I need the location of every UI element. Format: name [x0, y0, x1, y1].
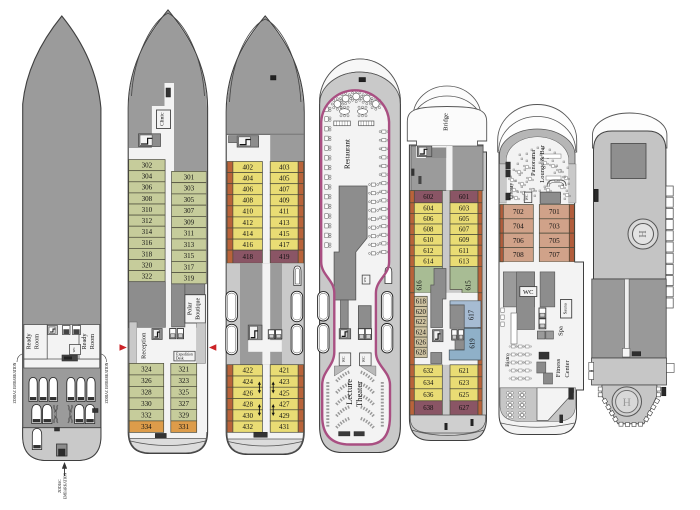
svg-text:425: 425 — [279, 389, 290, 397]
svg-text:408: 408 — [242, 197, 253, 205]
svg-text:632: 632 — [423, 368, 434, 375]
svg-text:320: 320 — [142, 261, 153, 269]
svg-text:Library: Library — [508, 183, 514, 200]
svg-text:611: 611 — [459, 248, 469, 255]
svg-text:328: 328 — [141, 389, 152, 397]
svg-text:331: 331 — [179, 423, 190, 431]
svg-text:307: 307 — [184, 207, 195, 215]
svg-text:412: 412 — [242, 219, 253, 227]
svg-text:315: 315 — [184, 252, 195, 260]
svg-text:Desk: Desk — [176, 356, 184, 360]
svg-text:308: 308 — [142, 195, 153, 203]
svg-text:605: 605 — [459, 216, 470, 223]
svg-text:322: 322 — [142, 273, 153, 281]
svg-text:407: 407 — [279, 186, 290, 194]
svg-text:432: 432 — [242, 423, 253, 431]
svg-text:H: H — [638, 230, 649, 237]
svg-text:330: 330 — [141, 400, 152, 408]
svg-text:626: 626 — [416, 340, 427, 347]
svg-text:624: 624 — [416, 329, 427, 336]
svg-text:304: 304 — [142, 173, 153, 181]
svg-text:WC: WC — [363, 276, 367, 282]
svg-text:427: 427 — [279, 401, 290, 409]
svg-text:Sauna: Sauna — [562, 303, 567, 314]
svg-text:Lounge & Bar: Lounge & Bar — [539, 144, 546, 182]
svg-text:Lecture: Lecture — [344, 379, 354, 405]
svg-text:615: 615 — [466, 280, 473, 291]
svg-text:620: 620 — [416, 309, 427, 316]
svg-text:609: 609 — [459, 237, 470, 244]
svg-text:ZODIAC EMBARKATION: ZODIAC EMBARKATION — [105, 362, 109, 403]
svg-text:622: 622 — [416, 319, 427, 326]
svg-text:421: 421 — [279, 367, 290, 375]
svg-text:402: 402 — [242, 163, 253, 171]
svg-text:426: 426 — [242, 389, 253, 397]
svg-text:415: 415 — [279, 230, 290, 238]
svg-text:Ready: Ready — [26, 333, 33, 350]
svg-text:301: 301 — [184, 173, 195, 181]
svg-text:317: 317 — [184, 263, 195, 271]
svg-text:416: 416 — [242, 241, 253, 249]
svg-text:306: 306 — [142, 184, 153, 192]
svg-text:428: 428 — [242, 401, 253, 409]
svg-text:623: 623 — [459, 380, 470, 387]
svg-text:Fitness: Fitness — [555, 358, 562, 377]
svg-text:Boutique: Boutique — [195, 297, 201, 319]
svg-text:319: 319 — [184, 275, 195, 283]
svg-text:604: 604 — [423, 205, 434, 212]
svg-text:601: 601 — [459, 194, 469, 201]
svg-text:617: 617 — [468, 309, 475, 320]
svg-text:607: 607 — [459, 227, 470, 234]
svg-text:410: 410 — [242, 208, 253, 216]
svg-text:411: 411 — [279, 208, 290, 216]
svg-text:613: 613 — [459, 258, 470, 265]
svg-text:702: 702 — [513, 208, 524, 216]
svg-text:311: 311 — [184, 230, 195, 238]
svg-text:Reception: Reception — [140, 332, 147, 359]
svg-text:303: 303 — [184, 185, 195, 193]
svg-text:334: 334 — [141, 423, 152, 431]
svg-text:321: 321 — [179, 366, 190, 374]
svg-text:429: 429 — [279, 412, 290, 420]
svg-text:628: 628 — [416, 350, 427, 357]
svg-text:704: 704 — [513, 223, 524, 231]
svg-text:614: 614 — [423, 258, 434, 265]
svg-text:Restaurant: Restaurant — [343, 139, 351, 169]
svg-text:602: 602 — [423, 194, 434, 201]
svg-text:627: 627 — [459, 405, 470, 412]
svg-text:705: 705 — [549, 237, 560, 245]
svg-text:Ready: Ready — [81, 333, 88, 350]
svg-text:Panorama: Panorama — [530, 150, 537, 176]
svg-text:606: 606 — [423, 216, 434, 223]
svg-text:603: 603 — [459, 205, 470, 212]
svg-text:625: 625 — [459, 392, 470, 399]
svg-text:431: 431 — [279, 423, 290, 431]
svg-text:ZODIAC: ZODIAC — [58, 479, 62, 493]
svg-text:707: 707 — [549, 251, 560, 259]
svg-text:419: 419 — [279, 253, 290, 261]
svg-text:325: 325 — [179, 389, 190, 397]
svg-text:638: 638 — [423, 405, 434, 412]
svg-text:634: 634 — [423, 380, 434, 387]
svg-text:708: 708 — [513, 251, 524, 259]
svg-text:302: 302 — [142, 162, 153, 170]
svg-text:430: 430 — [242, 412, 253, 420]
svg-text:305: 305 — [184, 196, 195, 204]
svg-text:424: 424 — [242, 378, 253, 386]
svg-text:423: 423 — [279, 378, 290, 386]
svg-text:327: 327 — [179, 400, 190, 408]
svg-text:418: 418 — [242, 253, 253, 261]
svg-text:610: 610 — [423, 237, 434, 244]
svg-text:Theater: Theater — [354, 381, 364, 407]
svg-text:706: 706 — [513, 237, 524, 245]
svg-text:403: 403 — [279, 163, 290, 171]
svg-text:619: 619 — [470, 338, 477, 349]
svg-text:616: 616 — [417, 280, 424, 291]
svg-text:Polar: Polar — [187, 302, 193, 315]
svg-text:409: 409 — [279, 197, 290, 205]
svg-text:318: 318 — [142, 250, 153, 258]
svg-text:314: 314 — [142, 228, 153, 236]
svg-text:703: 703 — [549, 223, 560, 231]
svg-text:H: H — [623, 397, 631, 409]
svg-text:Clinic: Clinic — [159, 112, 165, 126]
svg-text:WC: WC — [362, 356, 366, 362]
svg-text:422: 422 — [242, 367, 253, 375]
svg-text:332: 332 — [141, 412, 152, 420]
svg-text:WC: WC — [525, 194, 529, 200]
svg-text:323: 323 — [179, 377, 190, 385]
svg-text:ZODIAC EMBARKATION: ZODIAC EMBARKATION — [13, 362, 17, 403]
svg-text:618: 618 — [416, 299, 427, 306]
svg-text:414: 414 — [242, 230, 253, 238]
svg-text:WC: WC — [342, 356, 346, 362]
svg-text:EMBARKATION: EMBARKATION — [64, 473, 68, 500]
svg-text:326: 326 — [141, 377, 152, 385]
svg-text:417: 417 — [279, 241, 290, 249]
svg-text:309: 309 — [184, 218, 195, 226]
svg-text:329: 329 — [179, 412, 190, 420]
svg-text:Spa: Spa — [558, 326, 565, 336]
svg-text:612: 612 — [423, 248, 434, 255]
svg-text:701: 701 — [549, 208, 560, 216]
svg-text:WC: WC — [72, 347, 76, 352]
svg-text:316: 316 — [142, 239, 153, 247]
svg-text:404: 404 — [242, 175, 253, 183]
svg-text:Room: Room — [89, 334, 96, 349]
svg-text:406: 406 — [242, 186, 253, 194]
svg-text:Bistro: Bistro — [505, 353, 511, 367]
svg-text:324: 324 — [141, 366, 152, 374]
svg-text:Center: Center — [564, 360, 571, 378]
svg-text:621: 621 — [459, 368, 469, 375]
svg-text:413: 413 — [279, 219, 290, 227]
svg-text:313: 313 — [184, 241, 195, 249]
svg-text:636: 636 — [423, 392, 434, 399]
svg-text:310: 310 — [142, 206, 153, 214]
svg-text:312: 312 — [142, 217, 153, 225]
svg-text:Room: Room — [34, 334, 41, 349]
svg-text:608: 608 — [423, 227, 434, 234]
svg-text:405: 405 — [279, 175, 290, 183]
svg-text:WC: WC — [523, 289, 533, 296]
svg-text:Bridge: Bridge — [442, 113, 449, 131]
